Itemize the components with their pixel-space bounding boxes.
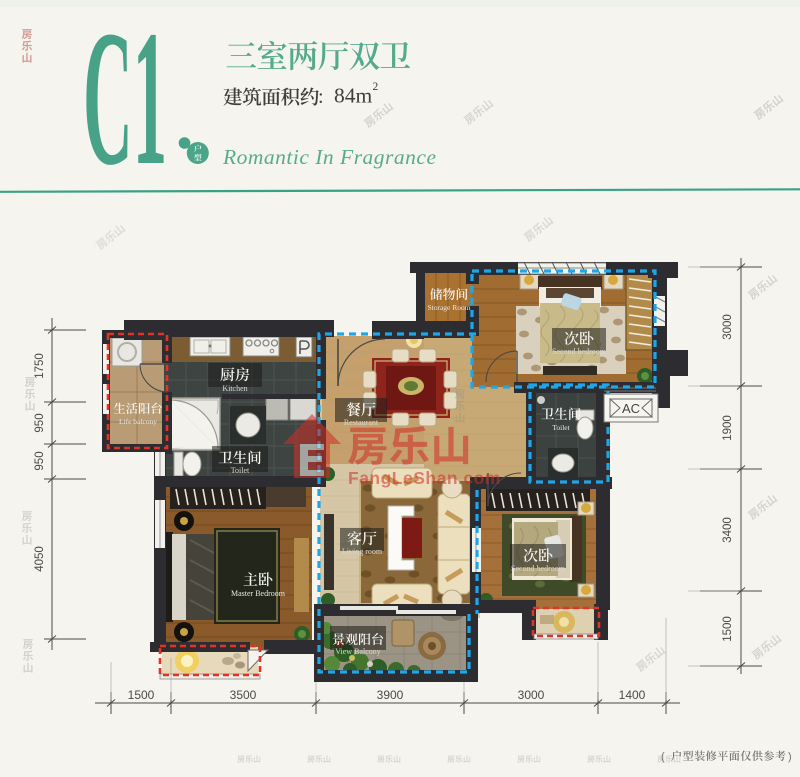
svg-text:C1: C1: [83, 0, 167, 206]
svg-text:1500: 1500: [128, 688, 155, 702]
svg-text:(: (: [661, 751, 665, 763]
svg-text:3000: 3000: [722, 314, 734, 340]
svg-text:Second bedroom: Second bedroom: [552, 347, 607, 356]
svg-text:4050: 4050: [34, 546, 46, 572]
svg-text:1750: 1750: [34, 353, 46, 379]
svg-text:3000: 3000: [518, 688, 545, 702]
svg-text:Kitchen: Kitchen: [222, 384, 247, 393]
svg-text:3400: 3400: [722, 517, 734, 543]
svg-text:Storage Room: Storage Room: [427, 303, 470, 312]
svg-text:Restaurant: Restaurant: [344, 418, 379, 427]
svg-text::: :: [318, 86, 324, 108]
svg-text:Life balcony: Life balcony: [119, 417, 157, 426]
svg-text:2: 2: [373, 81, 379, 93]
svg-text:1900: 1900: [722, 415, 734, 441]
svg-text:1500: 1500: [722, 616, 734, 642]
svg-text:AC: AC: [622, 401, 640, 416]
svg-text:Romantic In Fragrance: Romantic In Fragrance: [222, 145, 437, 169]
svg-text:View Balcony: View Balcony: [335, 647, 381, 656]
svg-text:1400: 1400: [619, 688, 646, 702]
svg-text:): ): [788, 751, 792, 763]
svg-text:950: 950: [34, 413, 46, 432]
svg-text:Toilet: Toilet: [552, 423, 570, 432]
svg-text:Master Bedroom: Master Bedroom: [231, 589, 286, 598]
svg-text:Second bedroom: Second bedroom: [511, 564, 566, 573]
svg-text:3500: 3500: [230, 688, 257, 702]
svg-text:Living room: Living room: [342, 547, 383, 556]
svg-text:84m: 84m: [334, 84, 373, 108]
svg-text:950: 950: [34, 451, 46, 470]
svg-text:3900: 3900: [377, 688, 404, 702]
svg-text:Toilet: Toilet: [231, 466, 250, 475]
svg-text:FangLeShan.com: FangLeShan.com: [348, 468, 501, 488]
